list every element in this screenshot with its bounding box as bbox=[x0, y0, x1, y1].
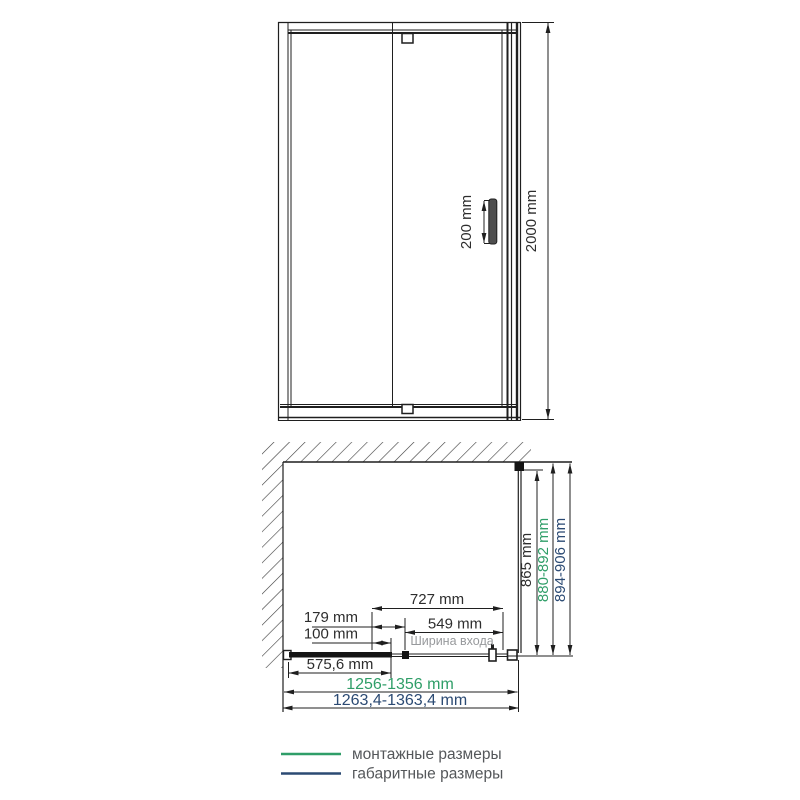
legend-overall-label: габаритные размеры bbox=[352, 766, 503, 783]
bottom-guide bbox=[402, 405, 413, 414]
handle-bar bbox=[489, 199, 497, 244]
width-dimensions: 727 mm 179 mm 100 mm 549 mm Ширина входа… bbox=[283, 591, 520, 712]
door-frame bbox=[278, 22, 521, 421]
dim-label-5756: 575,6 mm bbox=[307, 656, 374, 673]
entry-width-caption: Ширина входа bbox=[410, 634, 493, 648]
drawing-page: 200 mm 2000 mm bbox=[0, 0, 800, 800]
depth-mounting-label: 880-892 mm bbox=[535, 518, 552, 602]
legend-mounting-label: монтажные размеры bbox=[352, 746, 502, 763]
depth-overall-label: 894-906 mm bbox=[552, 518, 569, 602]
side-panel-wall-profile bbox=[515, 462, 525, 471]
height-dimension: 2000 mm bbox=[522, 23, 554, 420]
legend: монтажные размеры габаритные размеры bbox=[281, 746, 503, 783]
wall-hatch-top bbox=[283, 442, 531, 462]
wall-hatch-left bbox=[262, 442, 283, 668]
dim-label-overall-width: 1263,4-1363,4 mm bbox=[333, 692, 467, 709]
depth-glass-label: 865 mm bbox=[518, 533, 535, 587]
right-corner-profile-plan bbox=[508, 650, 518, 660]
dim-label-100: 100 mm bbox=[304, 626, 358, 643]
dim-label-727: 727 mm bbox=[410, 591, 464, 608]
handle-dim-label: 200 mm bbox=[458, 195, 475, 249]
dim-label-549: 549 mm bbox=[428, 616, 482, 633]
handle-dimension: 200 mm bbox=[458, 195, 490, 249]
shower-door-technical-drawing: 200 mm 2000 mm bbox=[0, 0, 800, 800]
dim-label-mounting-width: 1256-1356 mm bbox=[346, 676, 454, 693]
handle-plan-knob bbox=[489, 649, 496, 661]
door-pivot-block bbox=[402, 651, 409, 659]
door-handle bbox=[489, 199, 497, 244]
front-view: 200 mm 2000 mm bbox=[278, 22, 554, 421]
top-roller bbox=[402, 34, 413, 44]
dim-label-179: 179 mm bbox=[304, 609, 358, 626]
height-dim-label: 2000 mm bbox=[523, 190, 540, 253]
plan-view: 865 mm 880-892 mm 894-906 mm 727 mm 179 … bbox=[262, 442, 573, 712]
